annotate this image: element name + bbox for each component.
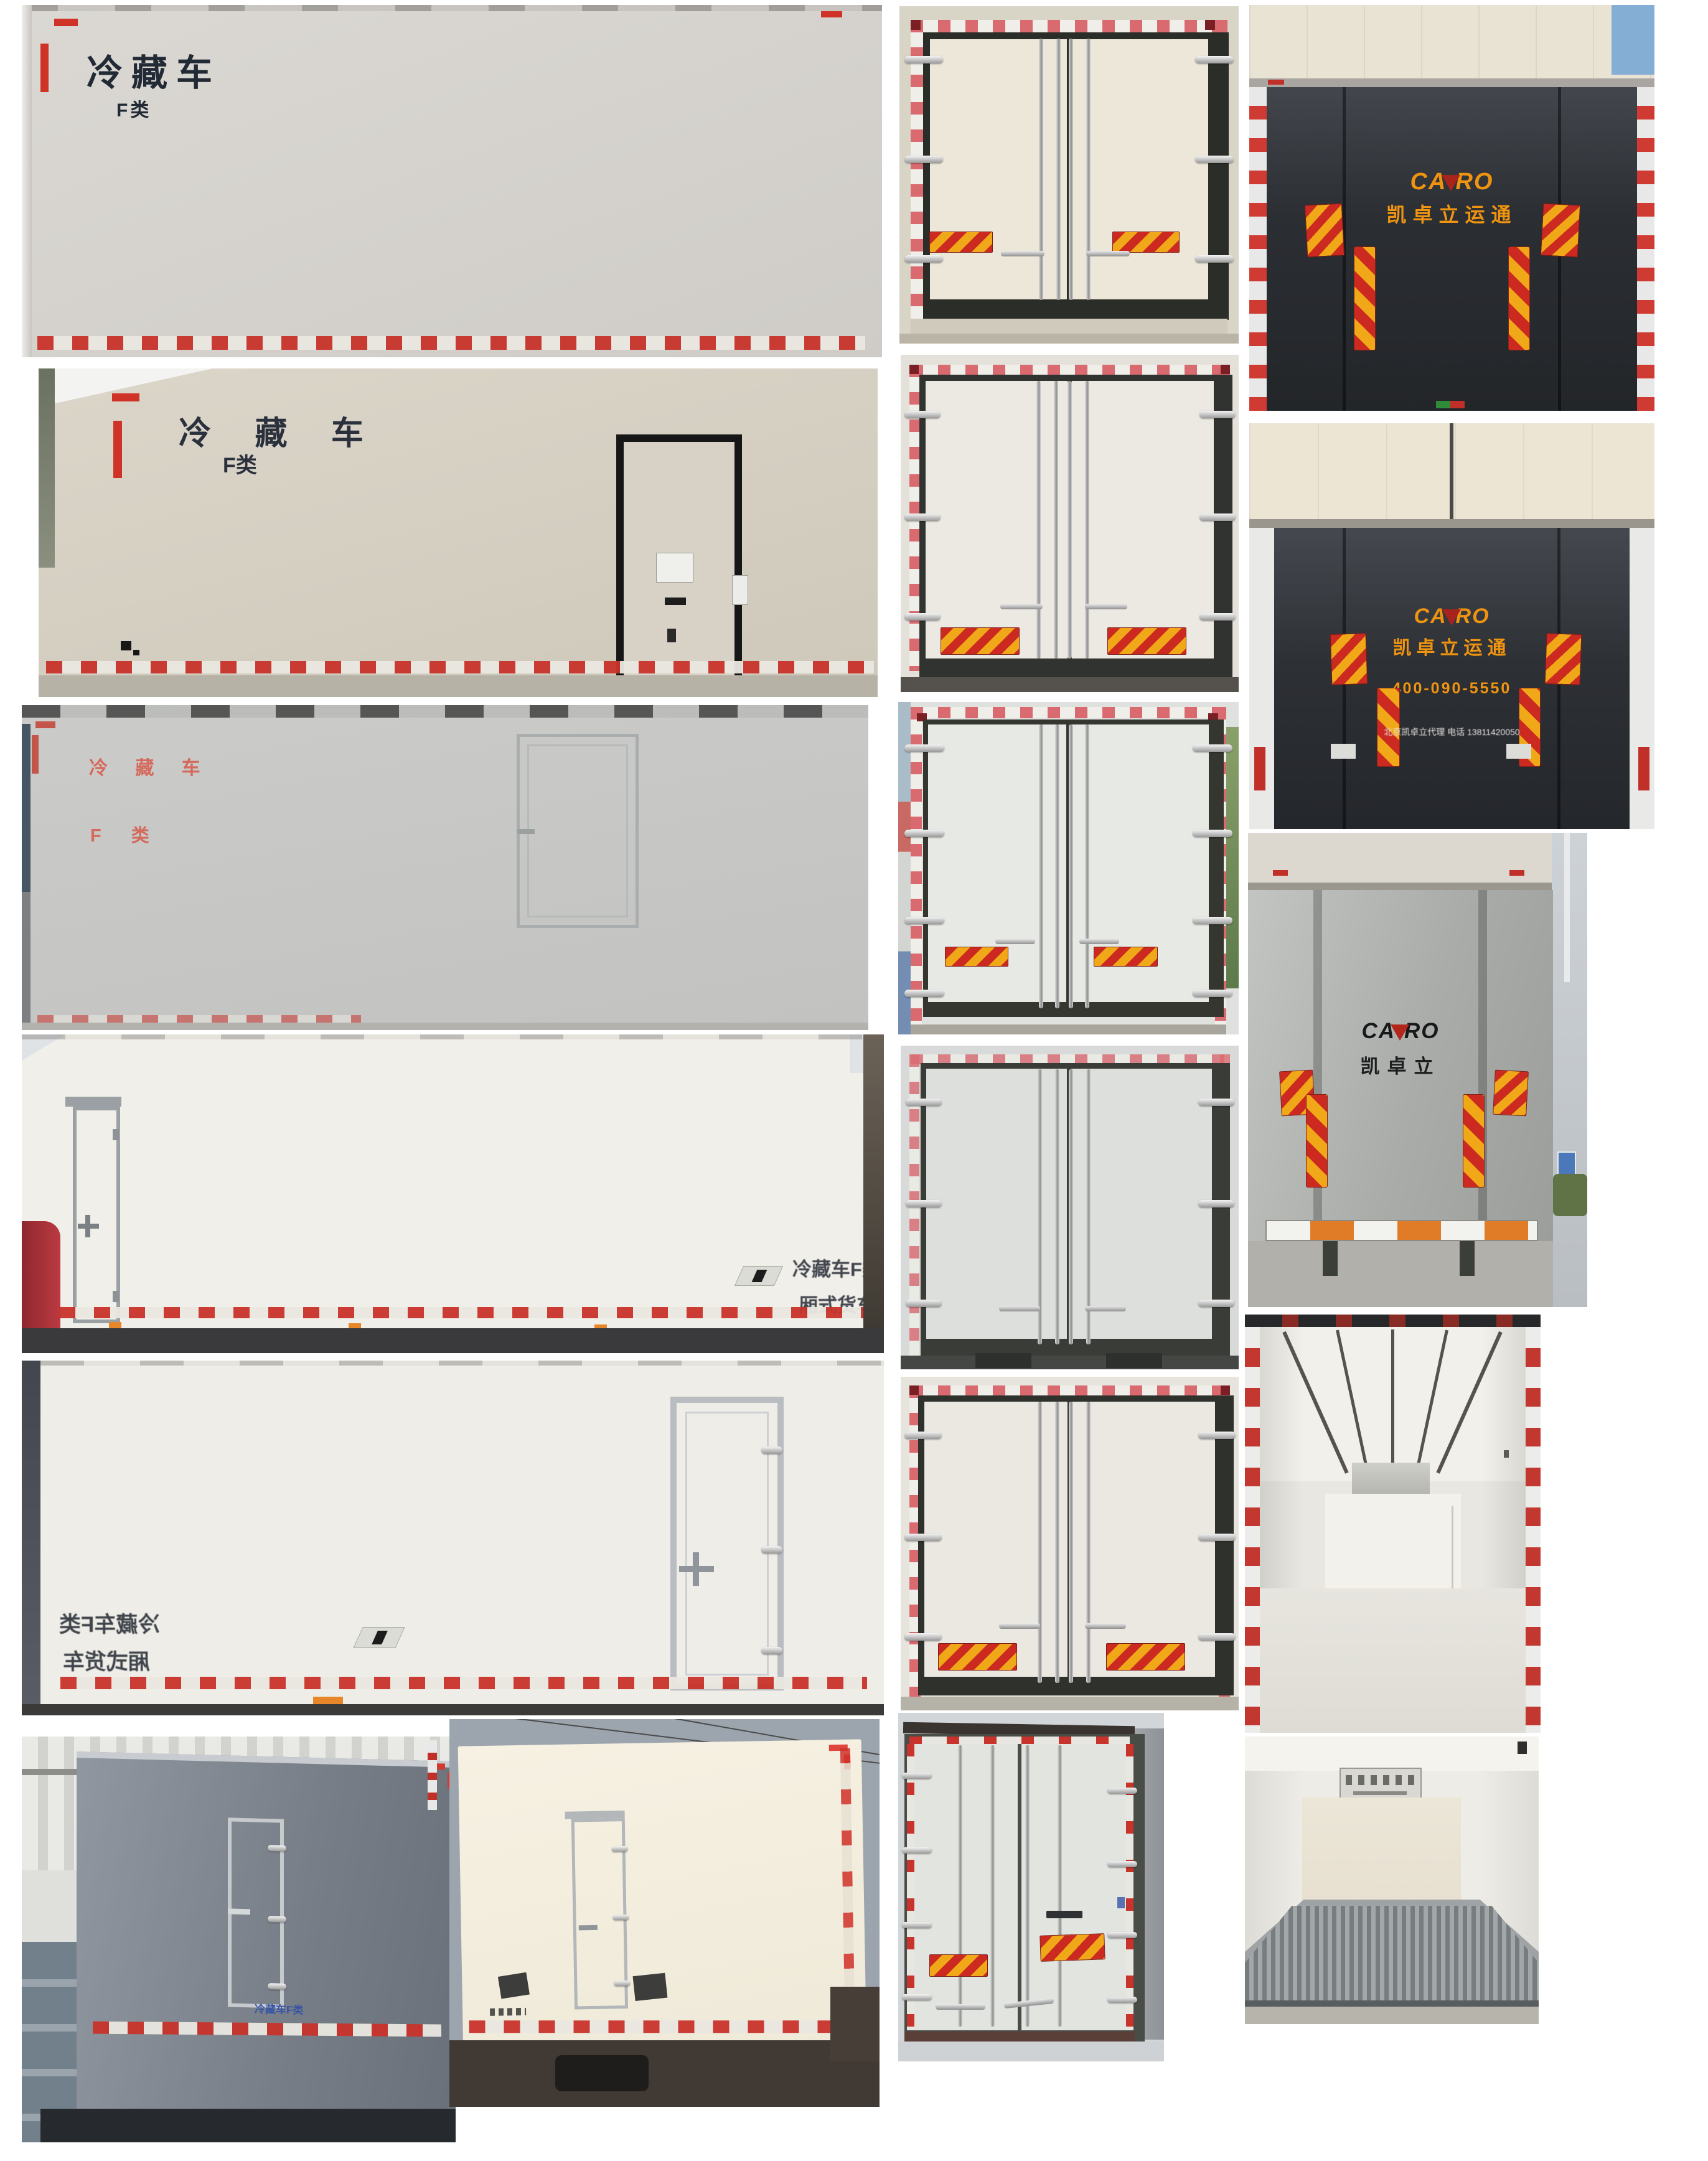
photo-gray-truck: 冷藏车F类 — [22, 1737, 456, 2142]
corner-mark-dark-red — [1221, 365, 1230, 374]
hinge — [268, 1983, 286, 1990]
side-door — [670, 1397, 784, 1690]
background-left — [898, 702, 911, 1034]
photo-tail-lift-1: CARO 凯卓立运通 — [1249, 5, 1654, 411]
side-door — [228, 1817, 284, 2008]
reflective-strip — [37, 1015, 361, 1023]
photo-tail-lift-2: CARO 凯卓立运通 400-090-5550 北京凯卓立代理 电话 13811… — [1249, 423, 1654, 829]
ground-shadow — [40, 2109, 456, 2142]
box-label-line2: F类 — [116, 95, 151, 122]
dark-plate — [633, 1973, 668, 2001]
door-leaf-left — [909, 1739, 1018, 2030]
door-handle — [1085, 604, 1127, 609]
door-lock — [667, 629, 676, 642]
vent-flap — [734, 1266, 783, 1286]
reflective-band-top — [911, 20, 1227, 32]
reflective-band-left — [911, 20, 923, 319]
striped-bar — [1354, 246, 1376, 350]
box-edge — [22, 5, 32, 357]
box-label-line1: 冷 藏 车 — [179, 407, 381, 454]
cargo-box-top — [1249, 5, 1654, 87]
door-frame-striped-left — [1245, 1327, 1260, 1733]
photo-cream-truck — [449, 1719, 880, 2107]
small-mark — [121, 641, 131, 650]
background-edge — [22, 892, 30, 1030]
hinge — [1107, 1788, 1137, 1794]
hinge — [612, 1915, 629, 1920]
side-door — [571, 1818, 628, 2009]
rear-bumper — [1265, 1220, 1538, 1241]
hinge — [1193, 830, 1232, 837]
door-inner-line — [527, 744, 628, 917]
back-wall — [1325, 1494, 1461, 1592]
photo-rear-view-1 — [899, 6, 1239, 344]
brand-logo: CARO — [1248, 1018, 1553, 1044]
box-bottom-edge — [22, 1023, 868, 1030]
roof-rail — [40, 1361, 884, 1366]
lock-rod — [1036, 381, 1041, 659]
hinge — [1199, 411, 1236, 418]
hinge — [904, 513, 941, 521]
ceiling — [1245, 1737, 1539, 1771]
chevron-plate — [1106, 1643, 1185, 1671]
sill — [904, 2032, 1135, 2041]
door-handle — [517, 829, 535, 834]
sky-corner — [1612, 5, 1654, 75]
side-door — [616, 434, 742, 687]
vent-flap — [353, 1627, 405, 1648]
door-handle — [579, 1925, 598, 1931]
lock-rod — [1069, 724, 1073, 1008]
striped-bar — [1306, 1094, 1328, 1188]
reflective-marks-top — [909, 1737, 1130, 1744]
lock-rod — [1054, 381, 1058, 659]
undercarriage — [22, 1328, 884, 1353]
chevron-plate — [1094, 947, 1158, 967]
hinge — [1195, 156, 1234, 163]
lock-rod — [1086, 1402, 1091, 1683]
lock-rod — [1069, 1069, 1073, 1344]
door-handle — [693, 1552, 699, 1586]
corner-mark-red — [40, 44, 49, 92]
corner-mark-red — [1509, 870, 1524, 876]
brand-logo: CARO — [1249, 168, 1654, 195]
lock-rod — [1055, 1069, 1059, 1344]
hinge — [1107, 1997, 1137, 2003]
corner-mark-red — [113, 421, 122, 478]
mud-flap — [1106, 1353, 1162, 1368]
chevron-plate — [929, 1954, 988, 1977]
small-mark — [133, 650, 139, 655]
hinge — [761, 1647, 782, 1654]
box-label-line2: F类 — [223, 448, 257, 479]
lock-rod — [1085, 381, 1089, 659]
background-edge — [22, 724, 30, 892]
photo-box-interior-2 — [1245, 1737, 1539, 2024]
reflective-post — [428, 1740, 437, 1810]
cargo-box-bottom-strip — [1248, 833, 1553, 890]
small-mark — [1504, 1450, 1509, 1458]
striped-bar — [1463, 1094, 1485, 1188]
door-frame — [923, 32, 1229, 320]
brand-logo-right: RO — [1456, 604, 1490, 629]
door-handle — [1000, 604, 1043, 609]
hinge — [1195, 255, 1234, 263]
roof-rail — [22, 1034, 884, 1039]
corner-mark-red — [821, 11, 842, 17]
dealer-contact: 北京凯卓立代理 电话 13811420050 — [1249, 726, 1654, 738]
hinge — [904, 56, 943, 63]
hinge — [906, 1099, 942, 1106]
tail-lamp-red — [1254, 747, 1265, 790]
cazro-triangle-icon — [1442, 609, 1461, 626]
hinge — [904, 1534, 942, 1541]
corner-mark-dark-red — [909, 1385, 919, 1395]
cazro-triangle-icon — [1442, 175, 1460, 191]
small-mark — [1518, 1741, 1527, 1754]
clearance-lamp — [109, 1322, 121, 1328]
door-leaf-left — [930, 39, 1067, 299]
door-keeper — [732, 575, 748, 605]
photo-rear-view-6 — [898, 1713, 1164, 2061]
door-leaf-right — [1071, 39, 1208, 299]
small-marks — [490, 2008, 526, 2016]
hinge — [904, 411, 941, 418]
brand-logo-right: RO — [1455, 169, 1493, 195]
rear-frame-edge — [863, 1034, 884, 1328]
reflective-strip — [37, 336, 865, 350]
sill — [911, 319, 1227, 334]
trees — [1553, 1174, 1587, 1216]
evaporator-grille — [1346, 1775, 1414, 1785]
dark-plate — [498, 1972, 530, 1999]
photo-side-view-4: 冷藏车F类 厢式货车 — [22, 1034, 884, 1353]
corner-mark-red — [32, 735, 39, 774]
photo-side-view-2: 冷 藏 车 F类 — [39, 368, 878, 697]
chevron-plate — [938, 1643, 1017, 1671]
hinge — [268, 1845, 286, 1852]
corner-mark-dark-red — [1205, 20, 1215, 30]
hinge — [614, 1981, 630, 1986]
reflective-marks-right — [1126, 1744, 1133, 2030]
front-sill — [1245, 2007, 1539, 2024]
reflective-strip — [46, 661, 874, 673]
corrugated-floor — [1245, 1906, 1539, 2004]
hinge — [904, 613, 941, 621]
reflective-marks-left — [907, 1744, 914, 2030]
corner-mark-dark-red — [909, 365, 919, 374]
hotline-phone: 400-090-5550 — [1249, 680, 1654, 698]
door-handle — [1086, 251, 1130, 256]
lock-rod — [1069, 39, 1073, 300]
hinge — [906, 1300, 942, 1307]
lock-rod — [1069, 1402, 1073, 1683]
lock-rod — [1038, 1069, 1042, 1344]
hinge — [761, 1546, 782, 1554]
photo-side-view-5: 冷藏车F类 厢式货车 — [22, 1361, 884, 1715]
reflective-post-right — [1637, 87, 1654, 411]
door-handle — [1085, 1306, 1126, 1311]
box-label-blue: 冷藏车F类 — [255, 2000, 303, 2017]
hinge — [904, 917, 944, 924]
wheel-shadow — [555, 2055, 649, 2091]
meat-rail — [1336, 1329, 1369, 1471]
background-bottom — [899, 334, 1239, 344]
reflective-band-top — [911, 707, 1226, 718]
corner-mark-red — [54, 19, 78, 26]
hinge — [904, 830, 944, 837]
box-label-line1: 冷藏车 — [87, 44, 221, 96]
hinge — [902, 1994, 932, 2000]
corner-mark-red — [1273, 870, 1288, 876]
door-leaf-right — [1072, 381, 1214, 659]
door-handle — [936, 2004, 985, 2010]
hinge — [1199, 513, 1236, 521]
ground — [898, 2041, 1164, 2061]
reflective-strip — [59, 1307, 868, 1318]
chevron-plate — [1330, 633, 1368, 685]
background-right-trees — [1226, 727, 1239, 988]
reflective-strip — [60, 1677, 867, 1689]
sill — [911, 1024, 1226, 1034]
hinge — [1198, 1432, 1236, 1439]
small-blue-letter — [1117, 1897, 1125, 1908]
door-leaf-left — [926, 381, 1067, 659]
hinge — [902, 1922, 932, 1928]
corner-mark-dark-red — [1221, 1385, 1230, 1395]
hinge — [1193, 917, 1232, 924]
bumper-leg — [1460, 1241, 1475, 1276]
evaporator-pipes — [1353, 1791, 1407, 1795]
lock-rod — [1086, 1069, 1091, 1344]
hinge — [1193, 744, 1232, 752]
ground-dark — [449, 2040, 880, 2107]
brand-subtitle: 凯卓立运通 — [1249, 632, 1654, 660]
door-leaf-left — [924, 1402, 1067, 1677]
photo-box-interior-1 — [1245, 1315, 1541, 1733]
side-door — [65, 1097, 121, 1107]
door-leaf-right — [1072, 1402, 1215, 1677]
box-label-mirrored-line2: 厢式货车 — [63, 1644, 150, 1676]
hinge — [1107, 1932, 1137, 1938]
cargo-box-gray: 冷藏车F类 — [77, 1751, 456, 2129]
door-sticker — [656, 553, 693, 583]
chevron-plate — [1545, 633, 1582, 685]
hinge — [904, 1633, 942, 1641]
door-handle — [1085, 1623, 1126, 1629]
lock-rod — [1038, 1402, 1042, 1683]
hinge — [904, 156, 943, 163]
brand-logo-right: RO — [1404, 1019, 1440, 1044]
lock-rod — [1025, 1745, 1030, 2027]
hinge — [902, 1773, 932, 1779]
hinge — [761, 1446, 782, 1454]
foliage-edge — [39, 368, 55, 568]
corner-mark-red — [1268, 80, 1284, 85]
floor — [1260, 1588, 1526, 1733]
background-bottom — [901, 677, 1239, 692]
lock-rod — [1055, 1402, 1059, 1683]
vent-dot — [372, 1631, 388, 1644]
bumper-leg — [1323, 1241, 1338, 1276]
white-plate — [1506, 744, 1531, 759]
photo-rear-view-4 — [901, 1046, 1239, 1369]
photo-side-view-3: 冷 藏 车 F 类 — [22, 705, 868, 1030]
lock-rod — [1055, 724, 1059, 1008]
hinge — [1198, 1200, 1234, 1207]
lock-rod — [1085, 724, 1089, 1008]
chevron-plate — [1541, 203, 1580, 257]
photo-rear-view-5 — [901, 1377, 1239, 1710]
hinge — [268, 1916, 286, 1923]
chevron-plate — [1107, 627, 1186, 655]
chevron-plate — [1493, 1070, 1529, 1117]
tail-lamp — [1436, 401, 1450, 408]
hinge — [1107, 1861, 1137, 1867]
door-handle — [665, 598, 686, 605]
white-plate — [1331, 744, 1356, 759]
cargo-box-cream — [458, 1739, 867, 2058]
hinge — [902, 1847, 932, 1854]
vent-dot — [752, 1270, 767, 1282]
background-bottom — [901, 1697, 1239, 1710]
chevron-plate — [1305, 203, 1344, 257]
brand-logo: CARO — [1249, 604, 1654, 629]
chevron-plate — [1112, 232, 1180, 253]
lock-rod — [1067, 381, 1072, 659]
box-bottom-rail — [1249, 519, 1654, 528]
chevron-plate — [1039, 1933, 1105, 1962]
hinge — [612, 1846, 628, 1852]
undercarriage — [22, 1704, 884, 1715]
floor-front-edge — [1245, 2000, 1539, 2007]
meat-rail — [1391, 1329, 1394, 1468]
hinge — [904, 990, 944, 997]
box-label-mirrored-line1: 冷藏车F类 — [59, 1607, 159, 1639]
door-hinge-dot — [113, 1129, 119, 1140]
photo-tail-lift-3: CARO 凯卓立 — [1248, 833, 1587, 1307]
hinge — [1195, 56, 1234, 63]
hinge — [906, 1200, 942, 1207]
door-frame — [923, 720, 1224, 1017]
door-handle — [995, 939, 1035, 944]
hinge — [1193, 990, 1232, 997]
hinge — [904, 1432, 942, 1439]
door-handle — [228, 1908, 250, 1915]
hinge — [1198, 1534, 1236, 1541]
striped-bar — [1508, 246, 1530, 350]
door-handle — [1001, 251, 1044, 256]
ground — [1248, 1241, 1553, 1307]
meat-rail — [1415, 1329, 1448, 1471]
background-rail — [22, 705, 868, 718]
tail-lamp — [1450, 401, 1465, 408]
box-center-seam — [1450, 423, 1453, 528]
door-leaf-right — [1021, 1739, 1130, 2030]
lock-rod — [990, 1745, 995, 2027]
utility-pole — [1564, 833, 1570, 982]
lock-rod — [1086, 39, 1091, 300]
door-handle — [85, 1215, 90, 1237]
cazro-triangle-icon — [1391, 1024, 1409, 1041]
reflective-band-left — [911, 707, 922, 1024]
door-handle — [999, 1623, 1040, 1629]
door-leaf-left — [926, 1069, 1067, 1339]
lock-rod — [958, 1745, 962, 2027]
corner-mark-dark-red — [911, 20, 921, 30]
corner-mark-red — [112, 393, 139, 401]
photo-rear-view-2 — [901, 355, 1239, 692]
photo-collage-sheet: 冷藏车 F类 冷 藏 车 F类 冷 藏 车 F 类 — [0, 0, 1708, 2161]
photo-rear-view-3 — [898, 702, 1239, 1034]
background-edge — [22, 1361, 40, 1715]
ground-dark-right — [830, 1987, 880, 2061]
door-header-bar — [1245, 1315, 1541, 1327]
door-inner-line — [685, 1412, 769, 1676]
box-label-line1: 冷 藏 车 — [89, 752, 212, 780]
reflective-strip — [469, 2020, 843, 2033]
box-bottom-edge — [39, 675, 878, 697]
lock-rod — [1039, 724, 1043, 1008]
reflective-post-left — [1249, 87, 1267, 411]
truck-cab-red — [22, 1221, 60, 1346]
reflective-strip — [93, 2022, 441, 2037]
chevron-plate — [941, 627, 1020, 655]
chevron-plate — [929, 232, 993, 253]
lock-rod — [1058, 1745, 1062, 2027]
door-handle — [1079, 939, 1119, 944]
side-door-outline — [517, 734, 639, 928]
mud-flap — [975, 1353, 1031, 1368]
brand-sticker — [1046, 1911, 1082, 1918]
box-bottom-rail — [1249, 78, 1654, 87]
hinge — [904, 255, 943, 263]
side-door — [73, 1107, 120, 1323]
door-leaf-right — [1071, 1069, 1212, 1339]
door-frame — [921, 1063, 1230, 1356]
interior-walls — [1260, 1327, 1526, 1733]
corner-mark-red — [35, 721, 55, 728]
hinge — [1198, 1099, 1234, 1106]
hinge — [1198, 1633, 1236, 1641]
roof-rail — [22, 5, 882, 11]
box-bottom-rail — [1248, 883, 1553, 890]
lock-rod — [1056, 39, 1061, 300]
door-handle — [999, 1306, 1040, 1311]
lock-rod — [1039, 39, 1043, 300]
photo-side-view-1: 冷藏车 F类 — [22, 5, 882, 357]
hinge — [1199, 613, 1236, 621]
hinge — [1198, 1300, 1234, 1307]
hinge — [904, 744, 944, 752]
door-frame-striped-right — [1526, 1327, 1541, 1733]
background-bottom — [901, 1356, 1239, 1369]
door-hinge-dot — [113, 1291, 119, 1302]
box-label-line2: F 类 — [90, 821, 162, 847]
tail-lamp-red — [1638, 747, 1649, 790]
chevron-plate — [945, 947, 1008, 967]
